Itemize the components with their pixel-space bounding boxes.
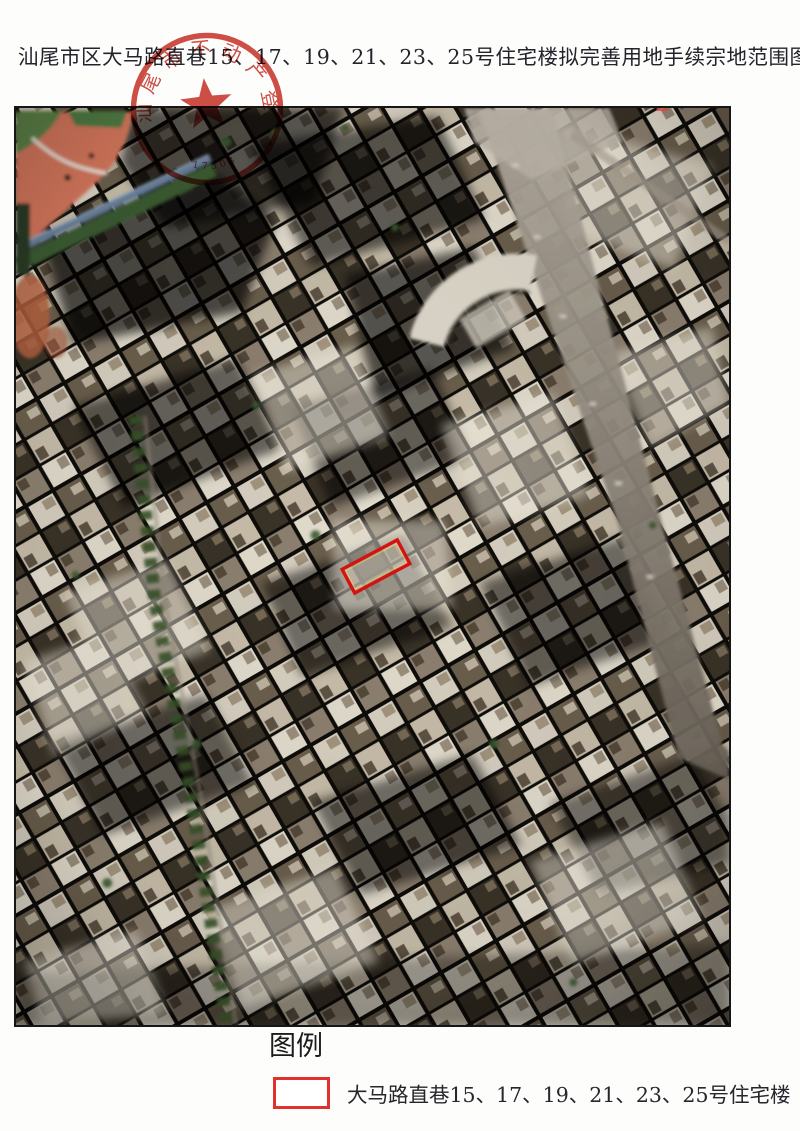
legend-swatch [273,1077,330,1109]
legend-label: 大马路直巷15、17、19、21、23、25号住宅楼 [347,1078,791,1108]
legend-item: 大马路直巷15、17、19、21、23、25号住宅楼 [273,1077,793,1109]
document-page: 汕尾市区大马路直巷15、17、19、21、23、25号住宅楼拟完善用地手续宗地范… [0,0,800,1131]
satellite-map [14,106,731,1027]
scan-artifact-mark [657,108,669,111]
legend: 图例 大马路直巷15、17、19、21、23、25号住宅楼 [269,1032,323,1062]
satellite-map-image [16,108,729,1025]
legend-title: 图例 [269,1032,323,1062]
page-title: 汕尾市区大马路直巷15、17、19、21、23、25号住宅楼拟完善用地手续宗地范… [18,40,788,70]
